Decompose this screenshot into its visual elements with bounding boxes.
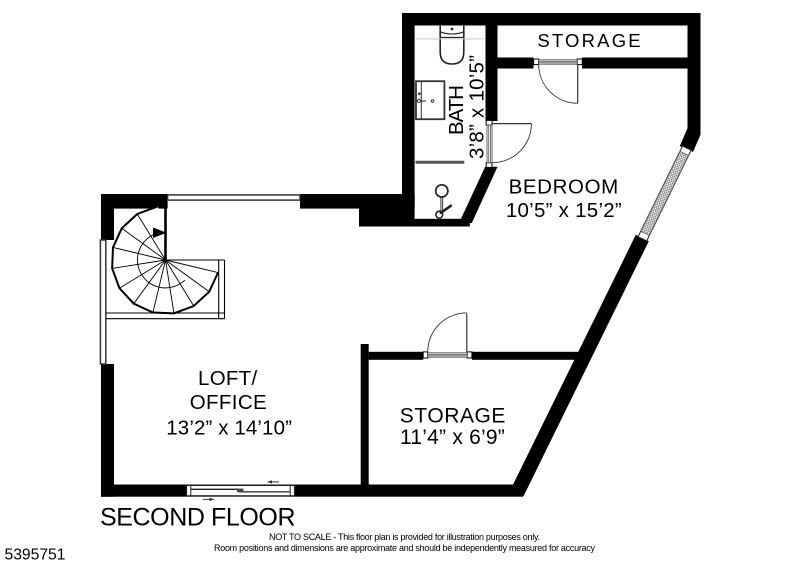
svg-text:NOT TO SCALE - This floor plan: NOT TO SCALE - This floor plan is provid… [269,532,540,542]
svg-text:10’5” x 15’2”: 10’5” x 15’2” [506,199,622,222]
svg-text:STORAGE: STORAGE [537,30,640,51]
svg-text:BEDROOM: BEDROOM [509,176,619,199]
svg-text:13’2” x 14’10”: 13’2” x 14’10” [166,416,292,439]
svg-text:5395751: 5395751 [5,547,66,564]
svg-text:LOFT/: LOFT/ [198,367,257,390]
svg-text:SECOND FLOOR: SECOND FLOOR [100,503,296,531]
svg-text:Room positions and dimensions: Room positions and dimensions are approx… [214,543,596,553]
svg-text:3’8” x 10’5”: 3’8” x 10’5” [466,55,489,159]
svg-text:11’4” x 6’9”: 11’4” x 6’9” [400,426,505,449]
svg-text:STORAGE: STORAGE [400,405,506,428]
svg-text:OFFICE: OFFICE [190,391,267,414]
